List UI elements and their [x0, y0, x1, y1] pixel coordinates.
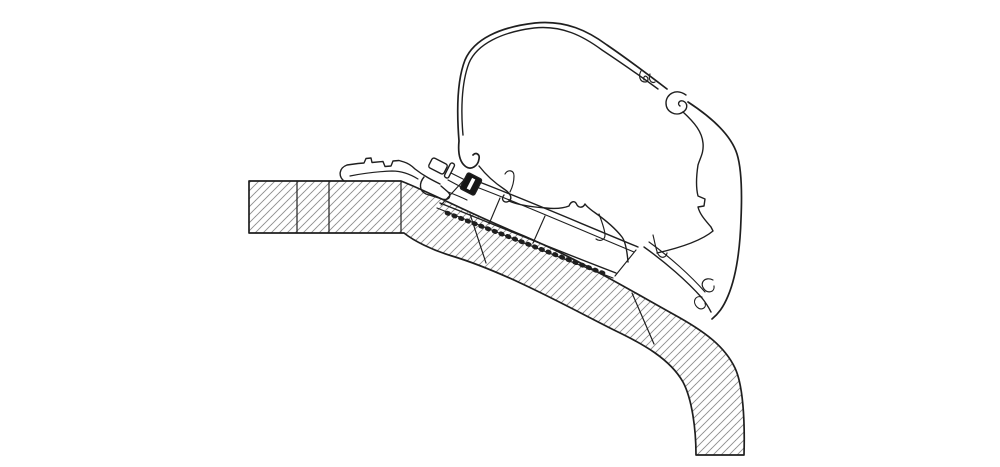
case-curl-catch: [666, 92, 687, 114]
case-tail-curl: [702, 279, 714, 292]
case-bottom-rail: [644, 247, 711, 312]
hex-bolt-head: [428, 157, 448, 175]
case-tail-curl: [695, 297, 706, 309]
case-inner-contour: [462, 28, 658, 135]
adapter-rail-left-cap: [441, 180, 464, 205]
adapter-rail-right-cap: [615, 250, 636, 276]
case-engagement-tab: [505, 171, 514, 192]
case-bottom-rail-inner: [649, 242, 705, 292]
adapter-foot-inner-line: [350, 171, 418, 179]
case-outer-contour: [458, 23, 667, 169]
adapter-rail-strut: [489, 198, 500, 224]
case-outer-right-wall: [688, 102, 742, 319]
roof-panel: [249, 181, 744, 455]
roof-cross-section: [249, 181, 744, 455]
diagram-canvas: [0, 0, 1000, 467]
case-inner-right-wall: [657, 112, 713, 253]
adapter-clamp-link: [448, 192, 467, 200]
adapter-rail-strut: [533, 216, 545, 243]
diagram-page: [0, 0, 1000, 467]
